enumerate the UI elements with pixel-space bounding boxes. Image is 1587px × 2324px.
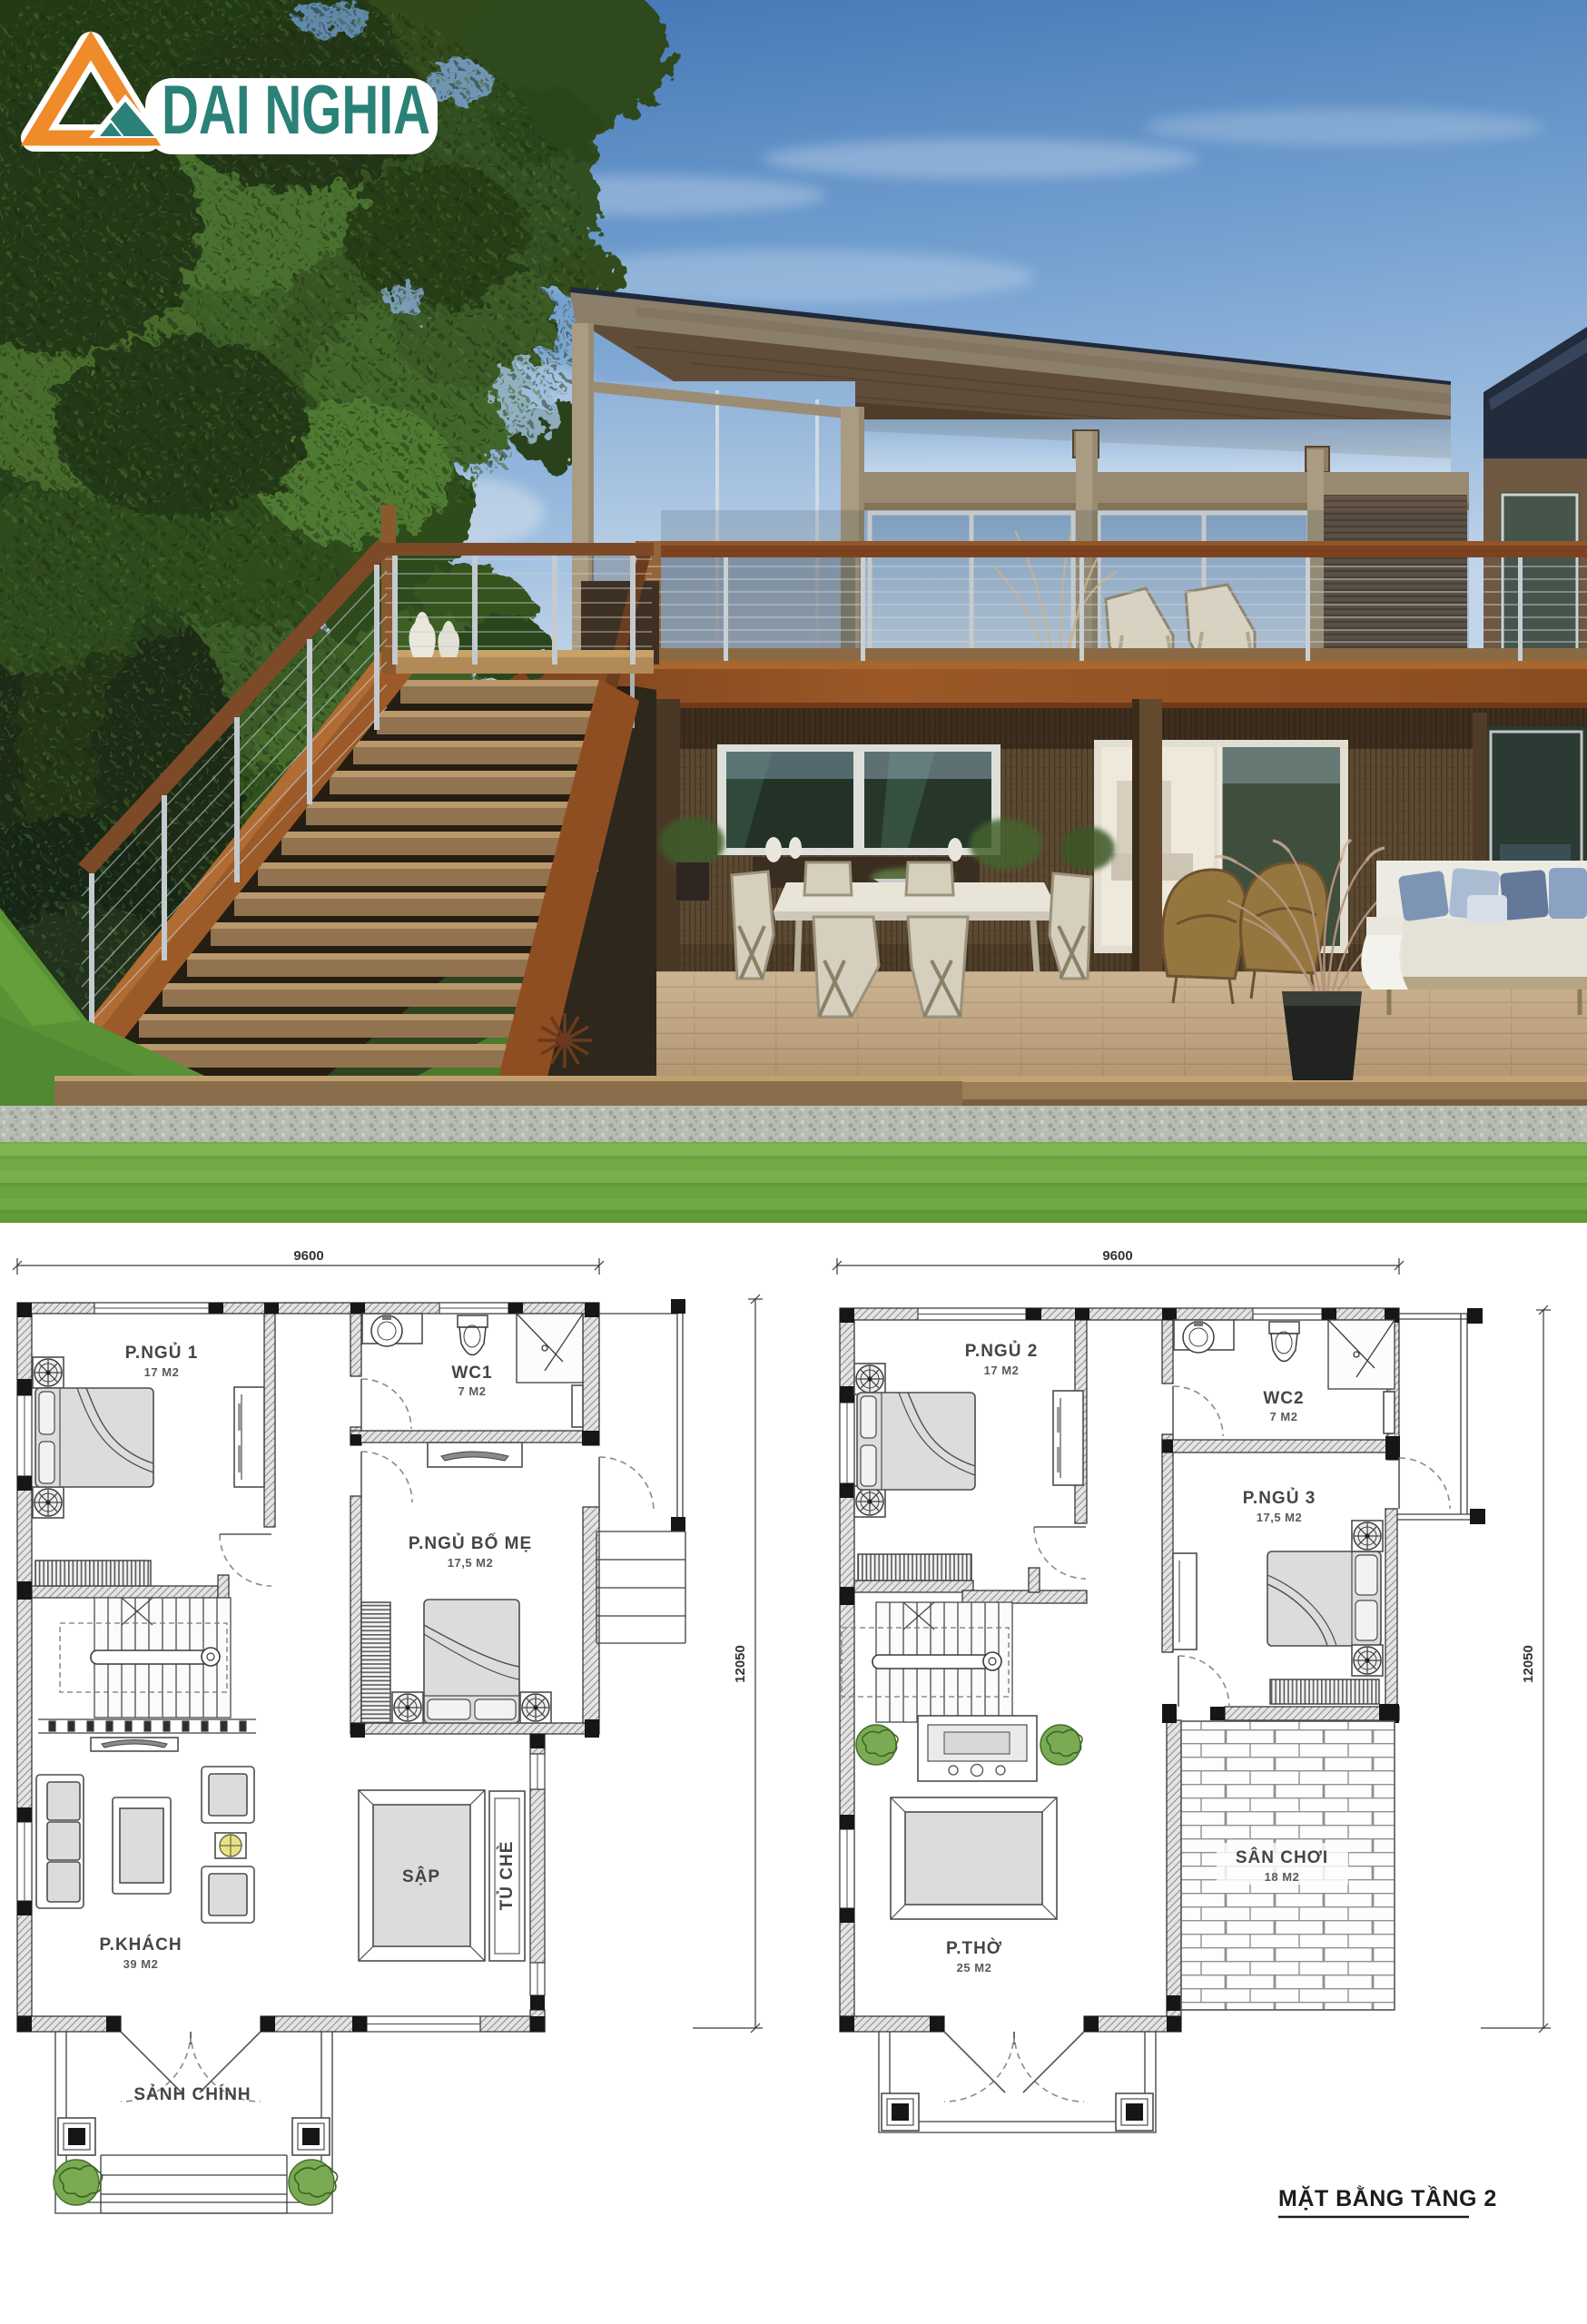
svg-text:P.NGỦ 2: P.NGỦ 2 <box>965 1341 1039 1361</box>
svg-text:WC2: WC2 <box>1263 1389 1304 1408</box>
svg-text:9600: 9600 <box>1102 1248 1132 1264</box>
svg-text:P.NGỦ BỐ MẸ: P.NGỦ BỐ MẸ <box>409 1533 532 1553</box>
svg-text:TỦ CHÈ: TỦ CHÈ <box>497 1841 517 1911</box>
svg-text:25 M2: 25 M2 <box>957 1961 992 1974</box>
svg-text:39 M2: 39 M2 <box>123 1957 159 1971</box>
svg-text:MẶT BẰNG TẦNG 2: MẶT BẰNG TẦNG 2 <box>1278 2185 1497 2211</box>
svg-text:WC1: WC1 <box>451 1364 492 1383</box>
svg-text:17 M2: 17 M2 <box>144 1365 180 1379</box>
svg-text:P.THỜ: P.THỜ <box>946 1938 1002 1958</box>
svg-text:P.KHÁCH: P.KHÁCH <box>99 1935 182 1955</box>
svg-text:7 M2: 7 M2 <box>458 1384 487 1398</box>
svg-text:12050: 12050 <box>1521 1645 1536 1683</box>
svg-text:SẬP: SẬP <box>402 1866 440 1886</box>
svg-text:7 M2: 7 M2 <box>1270 1410 1298 1423</box>
svg-text:SÂN CHƠI: SÂN CHƠI <box>1236 1847 1328 1867</box>
svg-text:P.NGỦ 3: P.NGỦ 3 <box>1243 1488 1316 1508</box>
svg-text:SẢNH CHÍNH: SẢNH CHÍNH <box>133 2084 251 2104</box>
svg-text:18 M2: 18 M2 <box>1265 1870 1300 1884</box>
svg-text:17,5 M2: 17,5 M2 <box>1257 1511 1302 1524</box>
svg-text:12050: 12050 <box>733 1645 748 1683</box>
svg-text:9600: 9600 <box>293 1248 323 1264</box>
svg-text:17,5 M2: 17,5 M2 <box>448 1556 493 1570</box>
svg-text:17 M2: 17 M2 <box>984 1364 1020 1377</box>
svg-text:DAI NGHIA: DAI NGHIA <box>162 72 430 149</box>
svg-text:P.NGỦ 1: P.NGỦ 1 <box>125 1343 199 1363</box>
